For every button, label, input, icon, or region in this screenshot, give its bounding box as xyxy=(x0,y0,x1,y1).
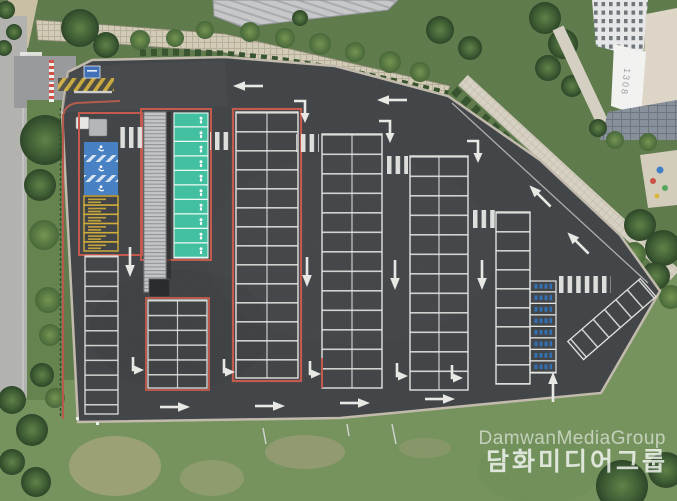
aerial-photo: 1308 xyxy=(0,0,677,501)
photo-grain-overlay xyxy=(0,0,677,501)
aerial-photo-stage: 1308 xyxy=(0,0,677,501)
